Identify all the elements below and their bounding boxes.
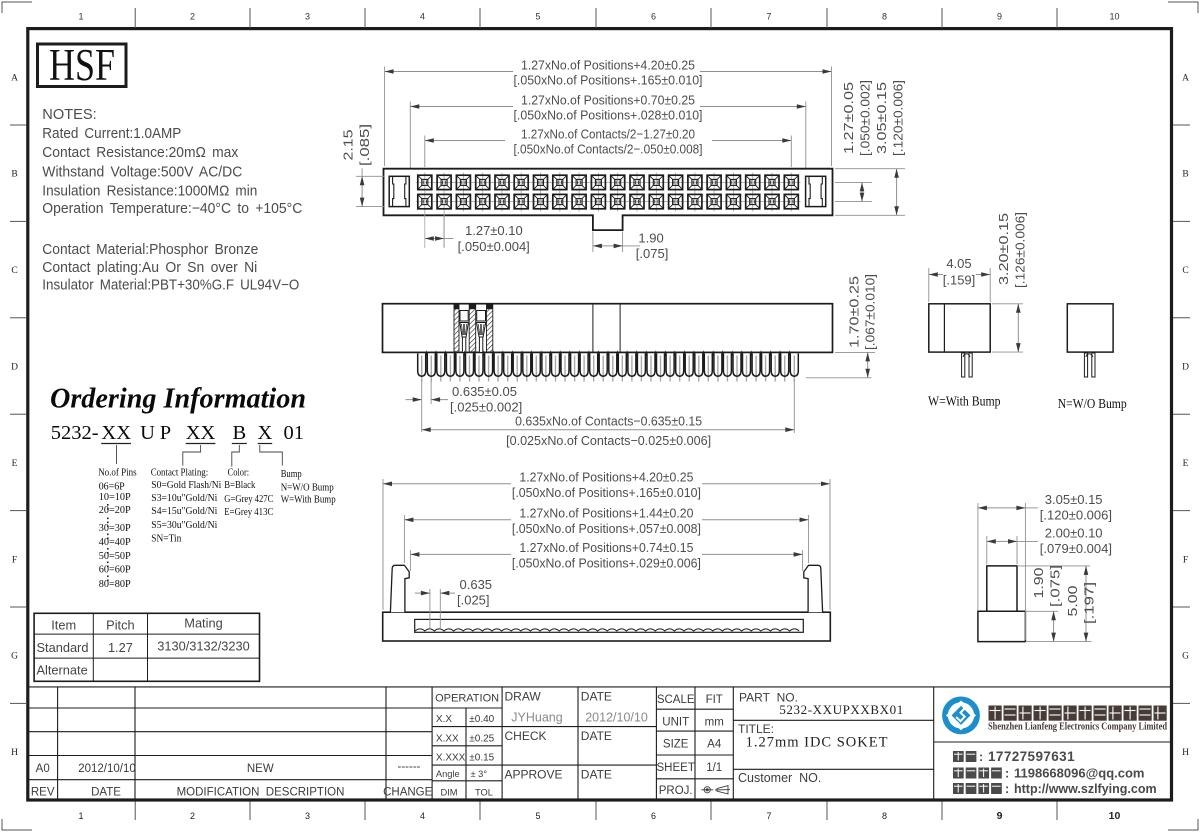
svg-text:G=Grey 427C: G=Grey 427C	[224, 494, 273, 505]
svg-text:2: 2	[190, 12, 195, 22]
svg-text:1.27mm IDC SOKET: 1.27mm IDC SOKET	[746, 735, 889, 751]
svg-text:Ordering Information: Ordering Information	[50, 384, 306, 415]
svg-text:N=W/O Bump: N=W/O Bump	[1058, 397, 1127, 412]
svg-text:F: F	[1183, 555, 1188, 565]
svg-text:FIT: FIT	[706, 694, 723, 706]
svg-text:±0.25: ±0.25	[469, 733, 494, 744]
svg-text:8: 8	[882, 811, 887, 821]
svg-text:C: C	[1182, 266, 1188, 276]
svg-text:1/1: 1/1	[706, 762, 722, 774]
svg-text:1: 1	[78, 12, 83, 22]
svg-text:[.050±0.002]: [.050±0.002]	[858, 80, 873, 156]
svg-text:Insulation Resistance:1000MΩ m: Insulation Resistance:1000MΩ min	[42, 184, 257, 200]
svg-text:40=40P: 40=40P	[99, 537, 131, 548]
svg-text:1.27xNo.of Positions+0.74±0.15: 1.27xNo.of Positions+0.74±0.15	[519, 540, 693, 555]
svg-text::: :	[979, 750, 983, 764]
svg-text:A4: A4	[707, 739, 722, 751]
svg-text:Operation Temperature:−40°C to: Operation Temperature:−40°C to +105°C	[42, 201, 302, 217]
svg-text:[.120±0.006]: [.120±0.006]	[891, 80, 906, 156]
svg-text:3: 3	[305, 811, 310, 821]
svg-text:[.050xNo.of Positions+.165±0.0: [.050xNo.of Positions+.165±0.010]	[514, 73, 703, 88]
svg-text:X.X: X.X	[436, 714, 452, 725]
svg-text:S5=30u"Gold/Ni: S5=30u"Gold/Ni	[151, 520, 217, 531]
svg-text:2012/10/10: 2012/10/10	[78, 763, 136, 775]
svg-text:Rated Current:1.0AMP: Rated Current:1.0AMP	[42, 126, 181, 142]
svg-text:0.635: 0.635	[460, 577, 493, 592]
svg-text:------: ------	[398, 761, 421, 773]
svg-text:1.27xNo.of Contacts/2−1.27±0.2: 1.27xNo.of Contacts/2−1.27±0.20	[521, 126, 695, 141]
svg-text:Standard: Standard	[37, 640, 89, 655]
svg-text:[.126±0.006]: [.126±0.006]	[1013, 212, 1028, 288]
svg-text:4: 4	[420, 811, 425, 821]
svg-text:E=Grey 413C: E=Grey 413C	[224, 507, 273, 518]
svg-text:H: H	[11, 748, 18, 758]
svg-text:REV: REV	[31, 787, 55, 799]
svg-text:mm: mm	[705, 717, 724, 729]
svg-text:E: E	[1183, 459, 1189, 469]
svg-text:B=Black: B=Black	[224, 480, 256, 491]
svg-text:A: A	[11, 73, 18, 83]
svg-text:6: 6	[651, 811, 656, 821]
svg-text:SIZE: SIZE	[663, 739, 689, 751]
svg-text:MODIFICATION DESCRIPTION: MODIFICATION DESCRIPTION	[177, 787, 345, 799]
svg-text:G: G	[11, 652, 18, 662]
svg-text:0.635xNo.of Contacts−0.635±0.1: 0.635xNo.of Contacts−0.635±0.15	[515, 413, 702, 428]
svg-text:[.085]: [.085]	[357, 124, 372, 166]
svg-text:1.27xNo.of Positions+0.70±0.25: 1.27xNo.of Positions+0.70±0.25	[521, 92, 695, 107]
svg-text:9: 9	[997, 810, 1003, 822]
svg-text:2.15: 2.15	[341, 130, 356, 161]
svg-text:CHECK: CHECK	[505, 729, 547, 743]
svg-text:01: 01	[284, 422, 305, 444]
svg-text:DATE: DATE	[581, 690, 612, 704]
svg-text::: :	[1005, 782, 1009, 796]
svg-text:3: 3	[305, 12, 310, 22]
svg-text:W=With Bump: W=With Bump	[928, 394, 1001, 409]
svg-text:[.075]: [.075]	[1047, 565, 1062, 607]
svg-text:5232-XXUPXXBX01: 5232-XXUPXXBX01	[779, 702, 904, 717]
svg-text:0.635±0.05: 0.635±0.05	[452, 384, 517, 399]
svg-text:SCALE: SCALE	[657, 694, 695, 706]
svg-text:NOTES:: NOTES:	[42, 107, 96, 123]
svg-text:C: C	[11, 266, 17, 276]
svg-text:PROJ.: PROJ.	[659, 785, 693, 797]
svg-text:17727597631: 17727597631	[988, 749, 1075, 764]
svg-text:[.197]: [.197]	[1081, 582, 1096, 624]
svg-text:H: H	[1182, 748, 1189, 758]
svg-text:B: B	[11, 170, 17, 180]
svg-text:10=10P: 10=10P	[99, 492, 131, 503]
svg-text:[.025]: [.025]	[457, 593, 490, 608]
svg-text:[.120±0.006]: [.120±0.006]	[1040, 508, 1112, 523]
svg-text:2: 2	[190, 811, 195, 821]
svg-text:60=60P: 60=60P	[99, 565, 131, 576]
svg-text:DATE: DATE	[581, 767, 612, 781]
svg-text:1.90: 1.90	[638, 231, 663, 246]
svg-text:Bump: Bump	[281, 469, 302, 480]
svg-text:UNIT: UNIT	[662, 717, 689, 729]
svg-text:D: D	[11, 363, 18, 373]
svg-text:3.05±0.15: 3.05±0.15	[874, 82, 889, 154]
svg-text:Shenzhen Lianfeng Electronics: Shenzhen Lianfeng Electronics Company Li…	[988, 722, 1167, 733]
svg-text:[.025±0.002]: [.025±0.002]	[450, 400, 522, 415]
svg-text:[.050xNo.of Positions+.165±0.0: [.050xNo.of Positions+.165±0.010]	[512, 485, 701, 500]
svg-text:4: 4	[420, 12, 425, 22]
svg-text:Withstand Voltage:500V AC/DC: Withstand Voltage:500V AC/DC	[42, 164, 242, 180]
svg-text:XX: XX	[186, 422, 216, 444]
svg-text:± 3°: ± 3°	[471, 769, 488, 779]
svg-text:HSF: HSF	[49, 40, 115, 90]
svg-text:[.079±0.004]: [.079±0.004]	[1040, 541, 1112, 556]
svg-text:1.27xNo.of Positions+1.44±0.20: 1.27xNo.of Positions+1.44±0.20	[519, 506, 693, 521]
svg-text:Contact Resistance:20mΩ max: Contact Resistance:20mΩ max	[42, 145, 239, 161]
svg-text:80=80P: 80=80P	[99, 579, 131, 590]
svg-text:2.00±0.10: 2.00±0.10	[1045, 526, 1103, 541]
svg-text:7: 7	[766, 811, 771, 821]
svg-text:Insulator Material:PBT+30%G.F: Insulator Material:PBT+30%G.F UL94V−O	[42, 277, 299, 293]
svg-text:OPERATION: OPERATION	[435, 693, 499, 705]
svg-text:E: E	[12, 459, 18, 469]
svg-text:1.27±0.10: 1.27±0.10	[465, 223, 523, 238]
svg-text:10: 10	[1109, 810, 1121, 822]
svg-text:5: 5	[535, 811, 540, 821]
svg-text:Contact plating:Au Or Sn over: Contact plating:Au Or Sn over Ni	[42, 260, 257, 276]
svg-text:XX: XX	[101, 422, 131, 444]
svg-text:D: D	[1182, 363, 1189, 373]
svg-text:Customer NO.: Customer NO.	[738, 771, 821, 785]
svg-text:DATE: DATE	[581, 729, 612, 743]
svg-text:NEW: NEW	[247, 763, 274, 775]
svg-text:No.of Pins: No.of Pins	[98, 468, 137, 479]
svg-text:N=W/O Bump: N=W/O Bump	[281, 482, 334, 493]
svg-text:30=30P: 30=30P	[99, 523, 131, 534]
svg-text:1198668096@qq.com: 1198668096@qq.com	[1014, 766, 1144, 781]
svg-text:1.27xNo.of Positions+4.20±0.25: 1.27xNo.of Positions+4.20±0.25	[521, 57, 695, 72]
svg-text:S3=10u"Gold/Ni: S3=10u"Gold/Ni	[151, 493, 217, 504]
svg-text:6: 6	[651, 12, 656, 22]
svg-text:3130/3132/3230: 3130/3132/3230	[157, 639, 250, 654]
svg-text:1.27xNo.of Positions+4.20±0.25: 1.27xNo.of Positions+4.20±0.25	[519, 470, 693, 485]
svg-text:X.XX: X.XX	[436, 733, 459, 744]
svg-text:JYHuang: JYHuang	[511, 711, 562, 725]
svg-text:7: 7	[766, 12, 771, 22]
svg-text:3.20±0.15: 3.20±0.15	[996, 213, 1011, 285]
svg-text:X.XXX: X.XXX	[436, 753, 466, 764]
svg-text:1.70±0.25: 1.70±0.25	[846, 276, 861, 348]
svg-text:U: U	[140, 422, 155, 444]
svg-text:DRAW: DRAW	[505, 690, 542, 704]
svg-text:1: 1	[78, 811, 83, 821]
svg-text:Alternate: Alternate	[37, 663, 88, 678]
svg-text:[.050±0.004]: [.050±0.004]	[458, 239, 530, 254]
svg-text:Angle: Angle	[436, 769, 460, 779]
svg-text:1.27: 1.27	[108, 640, 133, 655]
svg-text:8: 8	[882, 12, 887, 22]
svg-text:[.075]: [.075]	[636, 246, 669, 261]
svg-text:Contact Material:Phosphor Bron: Contact Material:Phosphor Bronze	[42, 242, 258, 258]
svg-text:±0.15: ±0.15	[469, 753, 494, 764]
svg-text:F: F	[12, 555, 17, 565]
svg-text:4.05: 4.05	[946, 256, 971, 271]
svg-text:B: B	[1182, 170, 1188, 180]
svg-text:10: 10	[1109, 12, 1119, 22]
svg-text::: :	[1005, 767, 1009, 781]
svg-text:APPROVE: APPROVE	[505, 767, 563, 781]
svg-text:1.27±0.05: 1.27±0.05	[841, 82, 856, 154]
svg-text:Item: Item	[51, 617, 76, 632]
svg-text:CHANGE: CHANGE	[383, 787, 433, 799]
svg-text:SN=Tin: SN=Tin	[151, 534, 181, 545]
svg-text:S4=15u"Gold/Ni: S4=15u"Gold/Ni	[151, 506, 217, 517]
svg-text:DIM: DIM	[440, 787, 457, 797]
svg-text:[.067±0.010]: [.067±0.010]	[863, 274, 878, 350]
svg-text:5.00: 5.00	[1065, 586, 1080, 617]
svg-text:20=20P: 20=20P	[99, 505, 131, 516]
svg-text:[.050xNo.of Positions+.057±0.0: [.050xNo.of Positions+.057±0.008]	[512, 521, 701, 536]
svg-text:P: P	[160, 422, 171, 444]
svg-text:5: 5	[535, 12, 540, 22]
svg-text:2012/10/10: 2012/10/10	[585, 711, 648, 725]
svg-text:Contact Plating:: Contact Plating:	[151, 468, 209, 479]
svg-text:G: G	[1182, 652, 1189, 662]
svg-text:±0.40: ±0.40	[469, 714, 494, 725]
svg-text:3.05±0.15: 3.05±0.15	[1045, 492, 1103, 507]
svg-text:1.90: 1.90	[1031, 568, 1046, 599]
svg-text:SHEET: SHEET	[657, 762, 695, 774]
svg-text:W=With Bump: W=With Bump	[281, 494, 336, 505]
svg-text:[0.025xNo.of Contacts−0.025±0.: [0.025xNo.of Contacts−0.025±0.006]	[506, 433, 711, 448]
svg-text:http://www.szlfying.com: http://www.szlfying.com	[1014, 782, 1157, 796]
svg-text:X: X	[257, 422, 272, 444]
svg-text:A: A	[1182, 73, 1189, 83]
svg-text:[.159]: [.159]	[943, 272, 976, 287]
svg-text:Color:: Color:	[228, 468, 250, 479]
svg-text:Pitch: Pitch	[106, 617, 134, 632]
svg-text:B: B	[232, 422, 246, 444]
svg-text:A0: A0	[36, 763, 50, 775]
svg-text:50=50P: 50=50P	[99, 551, 131, 562]
svg-text:Mating: Mating	[184, 615, 222, 630]
svg-text:TOL: TOL	[475, 787, 493, 797]
svg-text:06=6P: 06=6P	[99, 481, 125, 492]
svg-text:[.050xNo.of Positions+.028±0.0: [.050xNo.of Positions+.028±0.010]	[514, 108, 703, 123]
svg-text:S0=Gold Flash/Ni: S0=Gold Flash/Ni	[151, 480, 221, 491]
svg-text:5232-: 5232-	[51, 422, 99, 444]
svg-text:[.050xNo.of Positions+.029±0.0: [.050xNo.of Positions+.029±0.006]	[512, 555, 701, 570]
svg-text:[.050xNo.of Contacts/2−.050±0.: [.050xNo.of Contacts/2−.050±0.008]	[514, 142, 703, 157]
svg-text:9: 9	[997, 12, 1002, 22]
svg-text:DATE: DATE	[91, 787, 121, 799]
